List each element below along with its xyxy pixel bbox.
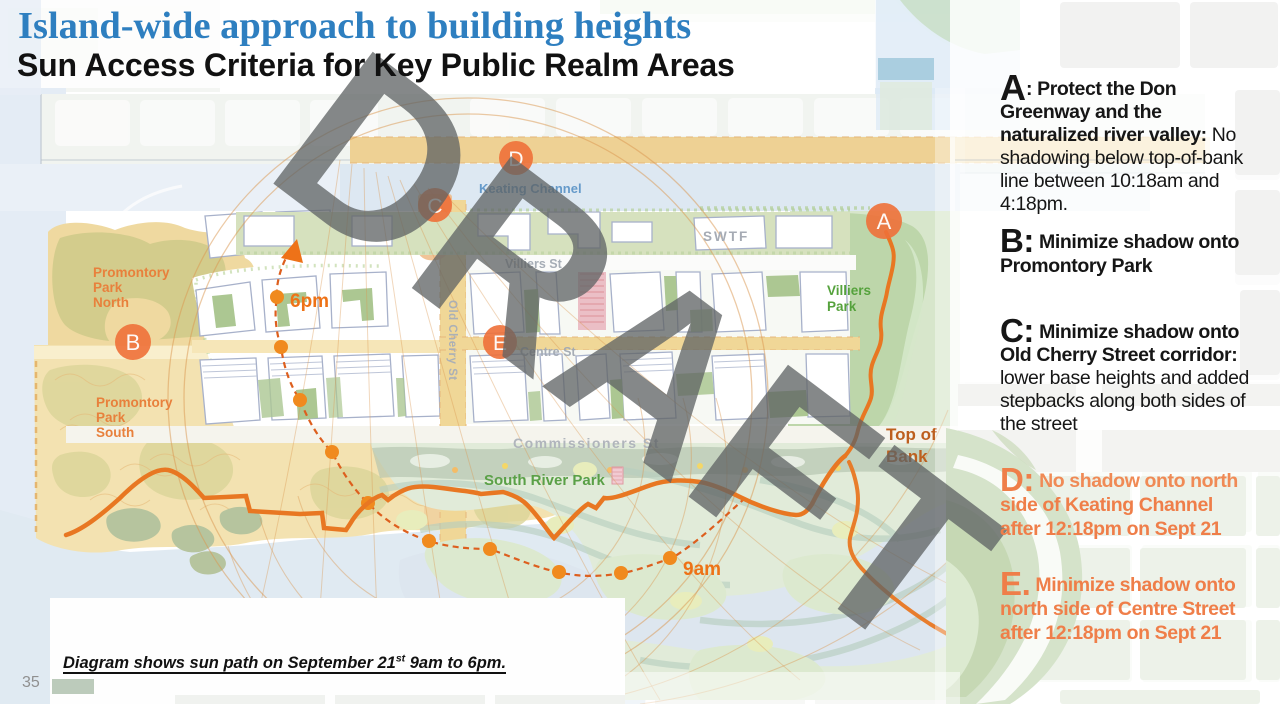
svg-text:South: South bbox=[96, 425, 134, 440]
svg-text:Villiers: Villiers bbox=[827, 283, 871, 298]
svg-text:A: A bbox=[877, 209, 892, 234]
svg-text:North: North bbox=[93, 295, 129, 310]
svg-text:Promontory: Promontory bbox=[96, 395, 173, 410]
svg-text:Park: Park bbox=[93, 280, 123, 295]
svg-text:Park: Park bbox=[827, 299, 857, 314]
svg-text:B: B bbox=[126, 330, 141, 355]
svg-text:Promontory: Promontory bbox=[93, 265, 170, 280]
svg-text:Park: Park bbox=[96, 410, 126, 425]
svg-text:6pm: 6pm bbox=[290, 291, 329, 312]
